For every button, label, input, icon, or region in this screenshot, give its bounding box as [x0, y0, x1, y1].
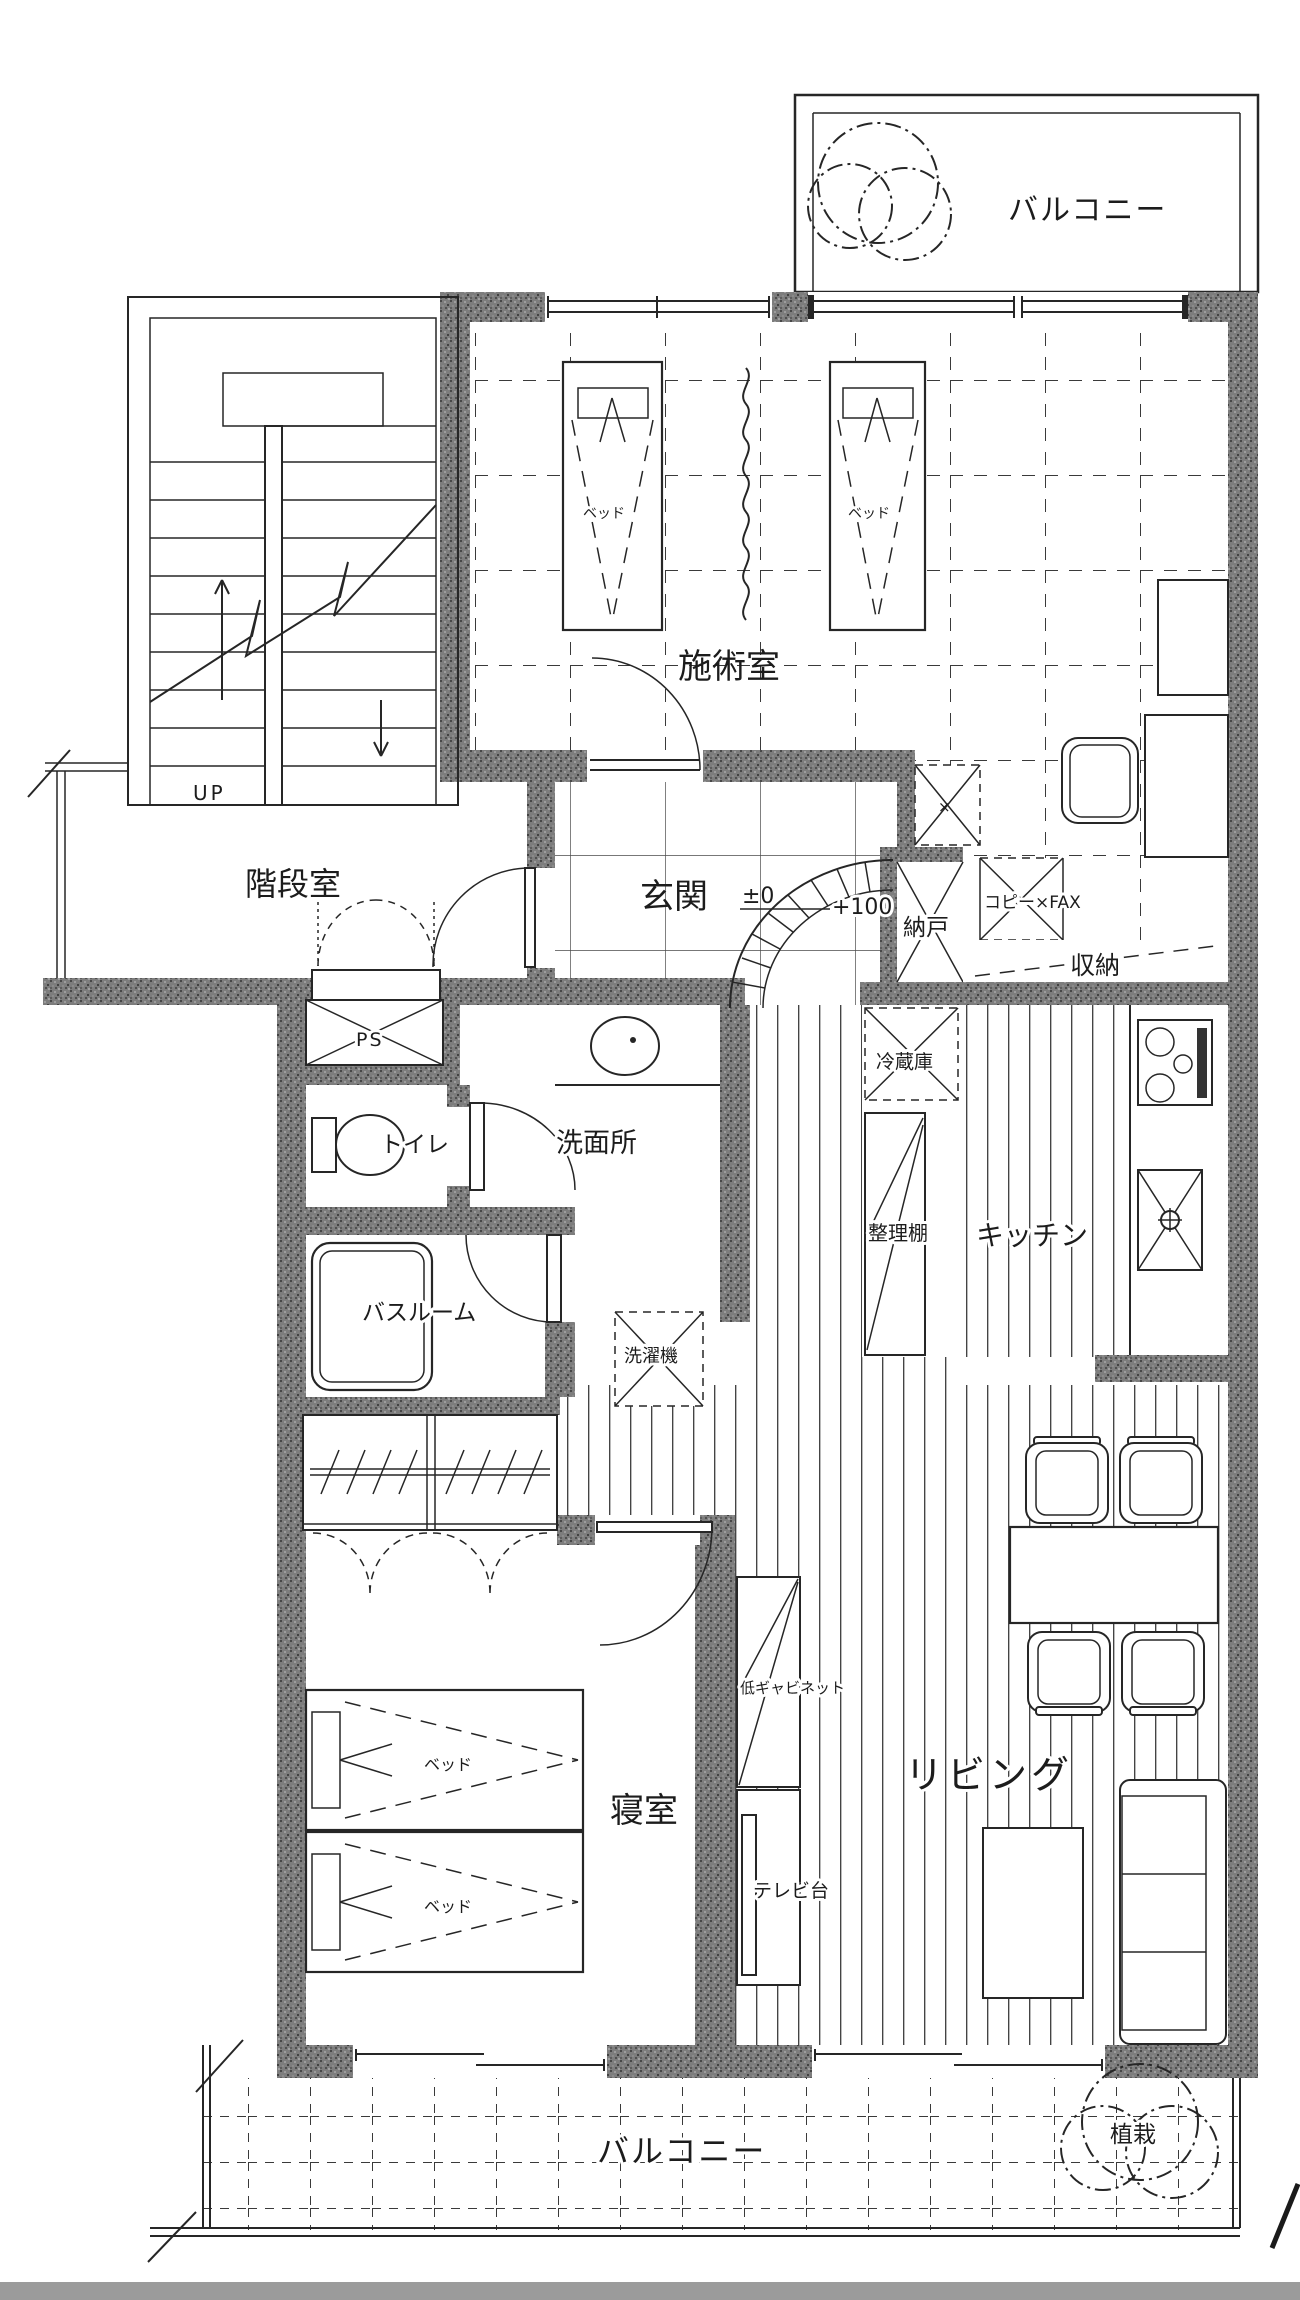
up-arrow-icon [215, 580, 229, 700]
closet-bifold-doors [313, 1533, 547, 1593]
toilet-label: トイレ [380, 1132, 449, 1158]
shelf-label: 整理棚 [868, 1221, 928, 1245]
desk-upper [1158, 580, 1228, 695]
bedroom-door [597, 1522, 712, 1645]
entrance-tile-floor [555, 782, 897, 1005]
bedroom-label: 寝室 [610, 1791, 678, 1831]
balcony-top-label: バルコニー [1008, 193, 1167, 228]
tv-stand-label: テレビ台 [753, 1880, 829, 1902]
entrance-door [433, 868, 535, 967]
laundry-label: 洗濯機 [624, 1346, 678, 1367]
living-label: リビング [905, 1753, 1073, 1797]
stair-landing [223, 373, 383, 426]
bedroom-living-wall [695, 1545, 735, 2045]
bedroom-bed-2-label: ベッド [424, 1897, 472, 1916]
scan-stray-mark [1272, 2184, 1298, 2248]
fridge-label: 冷蔵庫 [876, 1051, 933, 1073]
treatment-bed-1 [563, 362, 662, 630]
kitchen-sink [1138, 1170, 1202, 1270]
kitchen-label: キッチン [976, 1219, 1088, 1252]
stair-break-line [150, 505, 436, 702]
stairwell-label: 階段室 [245, 865, 341, 903]
treatment-bed-2 [830, 362, 925, 630]
low-cabinet-label: 低ギャビネット [740, 1679, 845, 1697]
living-balcony-slider [812, 2045, 1105, 2078]
stairs [28, 297, 458, 978]
copy-fax-label: コピー×FAX [984, 893, 1081, 913]
scan-edge-band [0, 2282, 1300, 2300]
washroom-label: 洗面所 [556, 1128, 637, 1159]
right-outer-wall [1228, 292, 1258, 2078]
desk-lower [1145, 715, 1228, 857]
bedroom-bed-1-label: ベッド [424, 1755, 472, 1774]
planting-label: 植栽 [1110, 2122, 1156, 2148]
shuno-label: 収納 [1070, 951, 1120, 980]
nando-label: 納戸 [903, 915, 949, 941]
level-zero-label: ±0 [742, 884, 774, 909]
shaft-mark-label: × [938, 798, 951, 816]
sofa [1120, 1780, 1226, 2044]
washbasin [555, 1017, 720, 1085]
coffee-table [983, 1828, 1083, 1998]
window-under-balcony [808, 292, 1188, 322]
hall-closet-doors [312, 900, 440, 1005]
balcony-bottom-label: バルコニー [597, 2132, 766, 2170]
kitchen-floor [958, 1005, 1130, 1357]
floor-plan: バルコニー 施術室 ベッド ベッド 階段室 UP 玄関 ±0 +100 納戸 コ… [0, 0, 1300, 2300]
treatment-room-label: 施術室 [678, 647, 780, 687]
window-treatment-left [545, 292, 772, 322]
corridor-floor [750, 1005, 862, 1385]
left-outer-wall [277, 978, 306, 2045]
treatment-bed-2-label: ベッド [848, 506, 890, 522]
bedroom-closet [303, 1415, 557, 1530]
up-label: UP [193, 781, 226, 805]
ps-label: PS [356, 1029, 384, 1051]
stove [1138, 1020, 1212, 1105]
cut-tick [28, 750, 70, 797]
bedroom-balcony-slider [353, 2045, 607, 2078]
bathroom-door [466, 1235, 561, 1322]
office-chair [1062, 738, 1138, 823]
level-plus-label: +100 [832, 895, 892, 920]
bathroom-label: バスルーム [362, 1300, 476, 1326]
dining-table [1010, 1527, 1218, 1623]
entrance-label: 玄関 [640, 877, 708, 917]
treatment-bed-1-label: ベッド [583, 506, 625, 522]
floor-plan-page: バルコニー 施術室 ベッド ベッド 階段室 UP 玄関 ±0 +100 納戸 コ… [0, 0, 1300, 2300]
